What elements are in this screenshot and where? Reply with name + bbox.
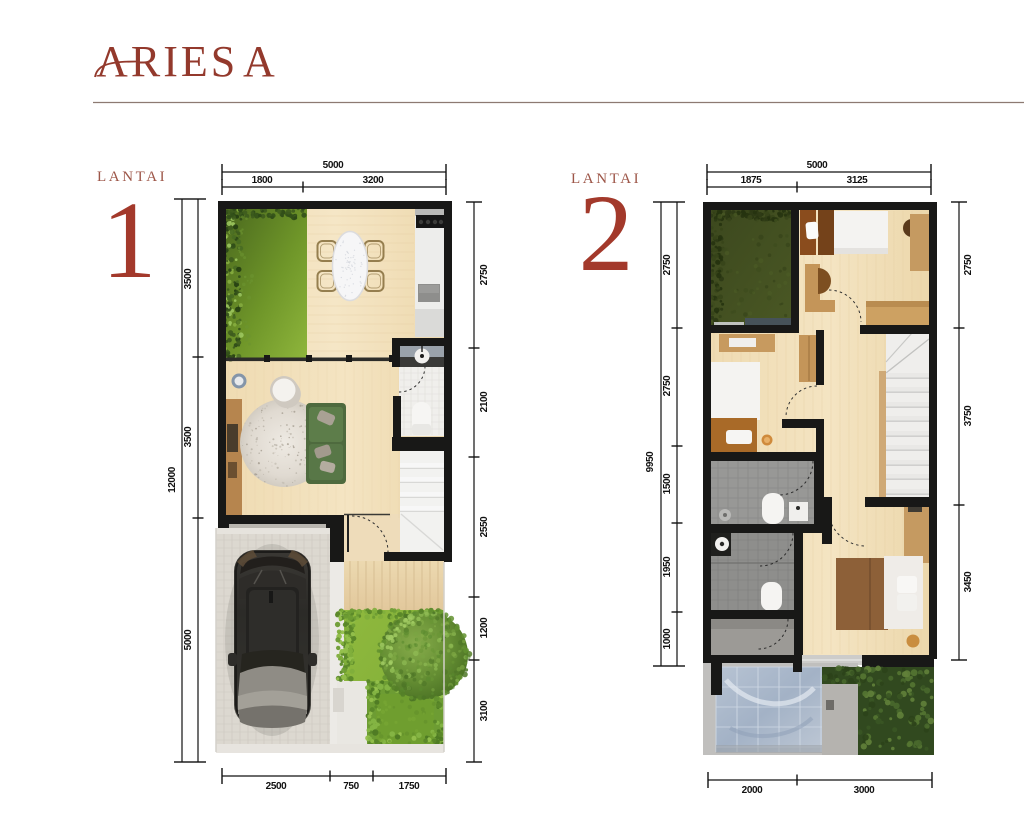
svg-text:3000: 3000	[854, 785, 875, 796]
svg-text:2750: 2750	[662, 375, 673, 396]
svg-text:1750: 1750	[399, 781, 420, 792]
svg-text:9950: 9950	[645, 451, 656, 472]
svg-text:1950: 1950	[662, 556, 673, 577]
svg-text:2750: 2750	[479, 264, 490, 285]
svg-text:1000: 1000	[662, 628, 673, 649]
svg-text:2750: 2750	[662, 254, 673, 275]
svg-text:3500: 3500	[183, 426, 194, 447]
svg-text:2: 2	[579, 172, 634, 294]
svg-text:2750: 2750	[963, 254, 974, 275]
svg-text:12000: 12000	[167, 466, 178, 493]
svg-text:3450: 3450	[963, 571, 974, 592]
svg-text:3750: 3750	[963, 405, 974, 426]
svg-text:1875: 1875	[741, 175, 762, 186]
svg-text:3200: 3200	[363, 175, 384, 186]
svg-text:3500: 3500	[183, 268, 194, 289]
svg-text:2000: 2000	[742, 785, 763, 796]
svg-text:1: 1	[102, 179, 157, 301]
svg-text:5000: 5000	[807, 160, 828, 171]
svg-text:5000: 5000	[183, 629, 194, 650]
svg-text:3125: 3125	[847, 175, 868, 186]
svg-text:5000: 5000	[323, 160, 344, 171]
svg-text:2100: 2100	[479, 391, 490, 412]
svg-text:1500: 1500	[662, 473, 673, 494]
svg-text:2500: 2500	[266, 781, 287, 792]
svg-text:2550: 2550	[479, 516, 490, 537]
svg-text:A: A	[243, 37, 275, 86]
svg-text:3100: 3100	[479, 700, 490, 721]
svg-text:1800: 1800	[252, 175, 273, 186]
svg-text:1200: 1200	[479, 617, 490, 638]
svg-text:750: 750	[343, 781, 359, 792]
